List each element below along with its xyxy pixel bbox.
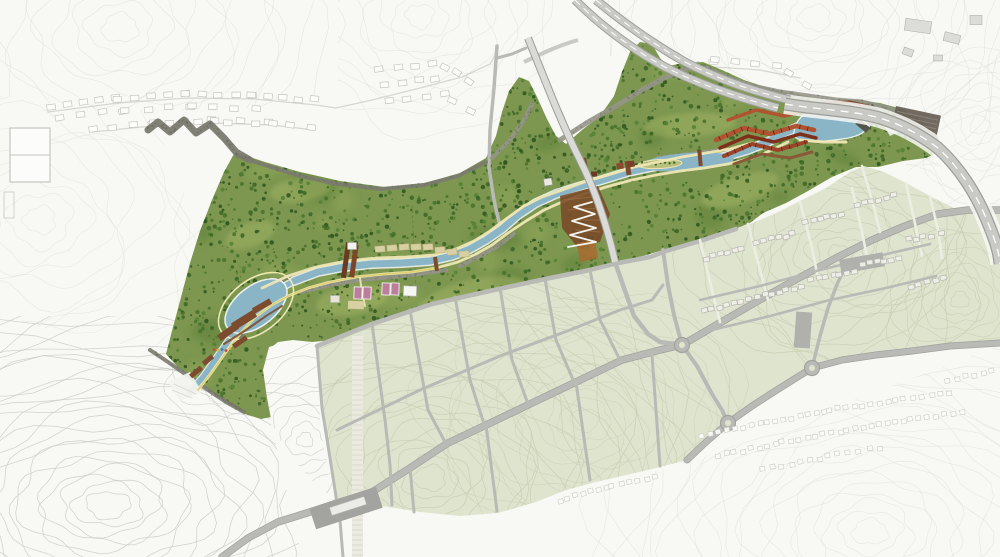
roundabout-1	[675, 338, 690, 353]
masterplan-canvas: Masterplan drawing of a river valley lin…	[0, 0, 1000, 557]
promenade-strip	[352, 336, 363, 557]
masterplan-svg: Masterplan drawing of a river valley lin…	[0, 0, 1000, 557]
roundabout-3	[805, 361, 820, 376]
promenade-stairs	[352, 336, 363, 557]
